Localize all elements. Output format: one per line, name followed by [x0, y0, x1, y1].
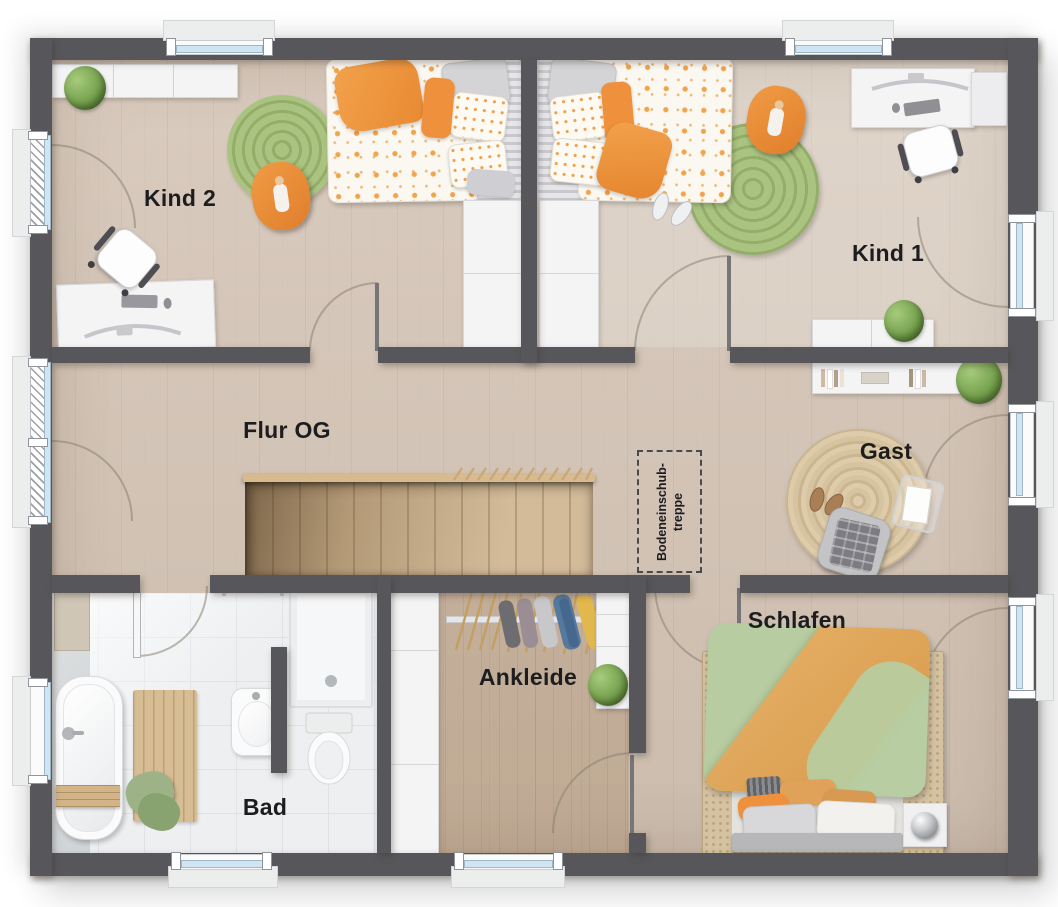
room-label-bad: Bad — [185, 794, 345, 821]
bathtub-faucet-spout — [72, 731, 84, 735]
chair-caster — [120, 288, 130, 298]
room-label-schlafen: Schlafen — [717, 607, 877, 634]
window-cap — [28, 358, 48, 367]
door-arc-kind2 — [310, 283, 378, 351]
window-cap — [171, 852, 181, 870]
sphere-lamp — [911, 812, 938, 839]
room-label-gast: Gast — [806, 438, 966, 465]
window-glazing — [1016, 413, 1023, 496]
magazine — [901, 485, 932, 524]
wall-mid-lower-a — [52, 575, 140, 593]
window-glazing — [1016, 223, 1023, 309]
monitor-stand — [116, 325, 132, 336]
door-arc-ankleide — [553, 753, 633, 833]
towel-pile — [126, 772, 188, 834]
window-cap — [28, 438, 48, 447]
window-glazing — [464, 860, 553, 868]
book — [834, 370, 838, 387]
room-label-flur-og: Flur OG — [207, 417, 367, 444]
monitor-stand — [908, 73, 924, 82]
window-cap — [28, 516, 48, 525]
wall-mid-lower-c — [740, 575, 1008, 593]
window-cap — [785, 38, 795, 56]
plant-kind2-shelf — [64, 66, 106, 110]
book — [922, 370, 926, 387]
shelf-divider — [113, 65, 114, 97]
railing-balusters — [452, 466, 594, 482]
wardrobe-kind2 — [463, 200, 523, 349]
desk-return-kind1 — [971, 72, 1007, 126]
pillow-dotted — [448, 91, 509, 143]
window-glazing — [44, 135, 51, 230]
washbasin-faucet — [252, 692, 260, 700]
window-cap — [263, 38, 273, 56]
doll-head — [774, 100, 784, 110]
book — [840, 369, 844, 387]
chair-caster — [86, 260, 96, 270]
door-arc-kind1 — [635, 256, 730, 351]
room-label-ankleide: Ankleide — [448, 664, 608, 691]
window-cap — [166, 38, 176, 56]
window-cap — [28, 775, 48, 784]
doll — [766, 107, 785, 137]
window-cap — [262, 852, 272, 870]
door-leaf-ankleide — [630, 755, 634, 833]
bathtub — [55, 676, 123, 840]
shelf-divider — [173, 65, 174, 97]
sideboard-divider — [871, 320, 872, 348]
shower — [289, 587, 373, 708]
wall-mid-upper-b — [378, 347, 635, 363]
bathtub-basin — [63, 684, 115, 832]
door-leaf-bad — [133, 588, 141, 658]
book — [909, 369, 913, 387]
window-cap — [1008, 690, 1036, 699]
pillow-dotted — [548, 91, 609, 143]
room-label-kind1: Kind 1 — [808, 240, 968, 267]
window-sill — [782, 20, 894, 41]
window-sill — [163, 20, 275, 41]
window-sill — [1036, 401, 1054, 508]
plant-kind1-sideboard — [884, 300, 924, 342]
window-cap — [1008, 404, 1036, 413]
wardrobe-door-line — [540, 273, 598, 274]
window-arc-flur-left — [52, 441, 132, 521]
window-cap — [1008, 497, 1036, 506]
bathroom-cabinet — [54, 585, 90, 651]
book — [827, 369, 833, 389]
doll — [272, 183, 290, 213]
window-cap — [28, 678, 48, 687]
door-leaf-kind2 — [375, 283, 379, 351]
toilet — [303, 712, 355, 788]
wall-bad-ankleide — [377, 575, 391, 853]
mouse — [892, 103, 900, 113]
window-cap — [553, 852, 563, 870]
pillow-gray — [466, 168, 516, 197]
shelf-line — [597, 614, 631, 615]
pillow-orange — [420, 77, 455, 139]
wall-kids-divider — [521, 60, 537, 363]
window-cap — [882, 38, 892, 56]
floor-plan: Bodeneinschub- treppe — [0, 0, 1058, 907]
wall-mid-upper-a — [52, 347, 310, 363]
mouse — [163, 298, 171, 309]
window-glazing — [181, 860, 266, 868]
shower-drain — [325, 675, 337, 687]
window-sill — [1036, 594, 1054, 701]
keyboard — [903, 99, 940, 117]
window-glazing — [44, 682, 51, 780]
wardrobe-door-line — [464, 273, 522, 274]
book — [821, 369, 825, 387]
wall-mid-upper-c — [730, 347, 1008, 363]
window-glazing — [176, 45, 263, 53]
duvet-green — [703, 622, 931, 798]
wall-ankleide-schlafen-upper — [629, 575, 646, 753]
window-cap — [28, 225, 48, 234]
door-arc-bad — [137, 586, 207, 656]
sphere-lamp-stand — [903, 803, 947, 847]
bath-caddy — [56, 785, 120, 807]
door-leaf-kind1 — [727, 256, 731, 351]
plaid-blanket — [828, 517, 881, 573]
wall-ankleide-schlafen-stub — [629, 833, 646, 853]
window-cap — [1008, 597, 1036, 606]
bed-kind2 — [327, 58, 520, 200]
window-cap — [28, 131, 48, 140]
book-stack — [861, 372, 889, 384]
window-glazing — [795, 45, 882, 53]
book — [915, 369, 921, 389]
plant-gast — [956, 356, 1002, 404]
desk-kind1 — [851, 68, 975, 128]
window-sill — [12, 676, 31, 786]
chair-caster — [951, 166, 960, 175]
shelf-line — [597, 646, 631, 647]
wall-mid-lower-b — [210, 575, 690, 593]
window-sill — [1036, 211, 1054, 321]
window-cap — [1008, 214, 1036, 223]
window-cap — [454, 852, 464, 870]
window-sill — [12, 129, 31, 237]
bookshelf-gast — [812, 362, 966, 394]
window-cap — [1008, 308, 1036, 317]
wall-shower-partition — [271, 647, 287, 773]
wardrobe-kind1 — [539, 200, 599, 349]
bed-schlafen — [706, 626, 928, 852]
room-label-kind2: Kind 2 — [100, 185, 260, 212]
bed-kind1 — [537, 56, 730, 200]
bed-headboard — [732, 833, 903, 852]
window-glazing — [1016, 606, 1023, 689]
